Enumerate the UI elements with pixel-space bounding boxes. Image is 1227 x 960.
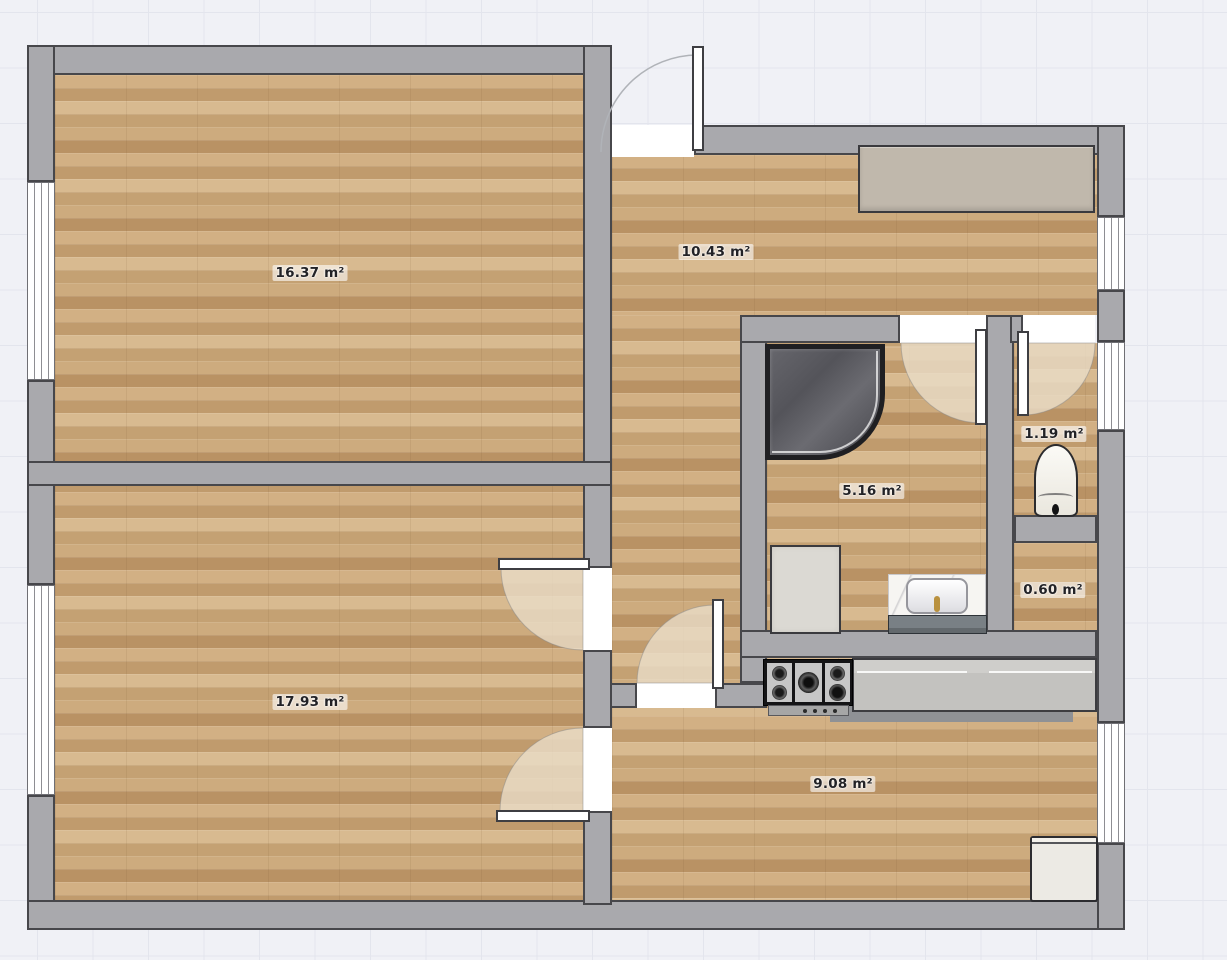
wc-door-leaf[interactable] (1018, 332, 1028, 415)
room-label-kitchen: 9.08 m² (810, 776, 875, 792)
room-label-hallway: 10.43 m² (679, 244, 754, 260)
living-room-door-north-leaf[interactable] (499, 559, 589, 569)
entrance-door-swing (601, 55, 698, 152)
door-layer (0, 0, 1227, 960)
room-label-bathroom: 5.16 m² (839, 483, 904, 499)
living-room-door-south-leaf[interactable] (497, 811, 589, 821)
wc-door-swing (1023, 343, 1095, 415)
kitchen-door-swing (637, 605, 715, 683)
room-label-closet: 0.60 m² (1020, 582, 1085, 598)
bathroom-door-swing (901, 343, 981, 423)
living-room-door-north-swing (501, 568, 583, 650)
kitchen-door-leaf[interactable] (713, 600, 723, 688)
room-label-bedroom: 16.37 m² (273, 265, 348, 281)
room-label-wc: 1.19 m² (1021, 426, 1086, 442)
entrance-door-leaf[interactable] (693, 47, 703, 150)
room-label-living-room: 17.93 m² (273, 694, 348, 710)
bathroom-door-leaf[interactable] (976, 330, 986, 424)
living-room-door-south-swing (500, 728, 583, 811)
floorplan-canvas: 16.37 m² 17.93 m² 10.43 m² 5.16 m² 1.19 … (0, 0, 1227, 960)
